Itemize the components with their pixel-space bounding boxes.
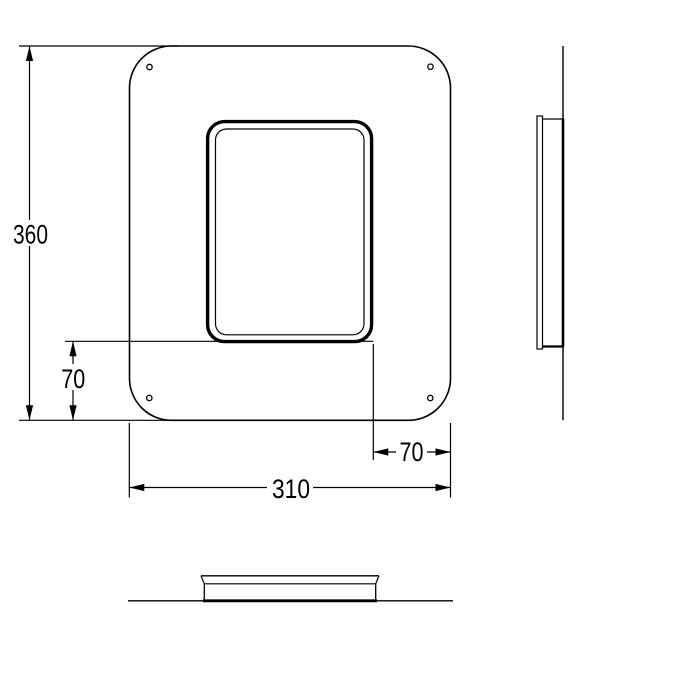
arrow-70v-down	[69, 405, 76, 420]
dim-label-offset-right: 70	[400, 437, 424, 467]
dimension-arrowheads	[26, 46, 451, 491]
bottom-flange-chamfer-left	[201, 576, 204, 584]
technical-drawing: 360 70 70 310	[0, 0, 700, 700]
dim-label-height: 360	[13, 220, 48, 250]
dimension-lines	[19, 46, 451, 498]
screw-hole-top-right	[428, 64, 433, 69]
plate-outline	[130, 46, 451, 420]
bottom-view	[128, 576, 453, 601]
drawing-canvas: 360 70 70 310	[0, 0, 700, 700]
dim-label-width: 310	[272, 474, 310, 504]
side-view	[537, 46, 564, 420]
dimension-labels: 360 70 70 310	[13, 220, 424, 505]
arrow-70h-left	[373, 448, 388, 455]
side-frame-flange	[537, 116, 543, 349]
dim-label-offset-bottom: 70	[61, 364, 85, 394]
label-backgrounds	[12, 220, 427, 500]
arrow-310-left	[129, 484, 144, 491]
arrow-310-right	[436, 484, 451, 491]
arrow-70v-up	[69, 341, 76, 356]
bezel-outer-edge	[208, 122, 372, 342]
arrow-70h-right	[436, 448, 451, 455]
arrow-360-up	[26, 46, 33, 61]
bottom-flange-chamfer-right	[376, 576, 379, 584]
bezel-inner-edge	[216, 129, 365, 335]
arrow-360-down	[26, 405, 33, 420]
screw-hole-bottom-left	[147, 395, 152, 400]
front-view	[130, 46, 451, 420]
screw-hole-top-left	[147, 64, 152, 69]
screw-hole-bottom-right	[428, 395, 433, 400]
